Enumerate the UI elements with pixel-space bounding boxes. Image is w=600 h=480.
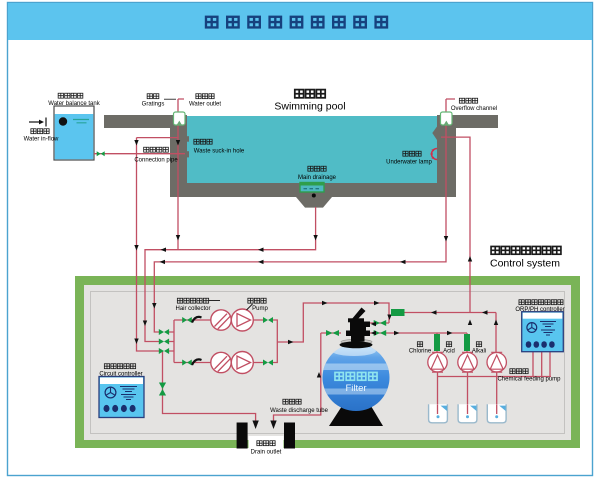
svg-text:Pump: Pump xyxy=(252,306,268,312)
svg-text:Water in-flow: Water in-flow xyxy=(24,137,59,143)
svg-text:Drain outlet: Drain outlet xyxy=(251,450,282,456)
svg-text:Waste discharge tube: Waste discharge tube xyxy=(270,408,328,414)
svg-text:ORP/PH controller: ORP/PH controller xyxy=(515,307,564,313)
svg-text:Water outlet: Water outlet xyxy=(189,102,221,108)
svg-text:Chlorine: Chlorine xyxy=(409,349,432,355)
svg-text:Swimming pool: Swimming pool xyxy=(274,101,345,113)
svg-text:Water balance tank: Water balance tank xyxy=(48,101,100,107)
svg-text:Chemical feeding pump: Chemical feeding pump xyxy=(497,377,561,383)
svg-text:Main drainage: Main drainage xyxy=(298,175,337,181)
svg-text:Alkali: Alkali xyxy=(472,349,486,355)
svg-text:Hair collector: Hair collector xyxy=(175,306,210,312)
svg-text:Filter: Filter xyxy=(345,383,366,394)
svg-text:Circuit controller: Circuit controller xyxy=(99,372,142,378)
svg-text:Acid: Acid xyxy=(443,349,455,355)
svg-text:Waste suck-in hole: Waste suck-in hole xyxy=(194,149,245,155)
svg-text:Connection pipe: Connection pipe xyxy=(134,158,178,164)
svg-text:Control system: Control system xyxy=(490,258,560,270)
svg-text:Underwater lamp: Underwater lamp xyxy=(386,160,432,166)
svg-text:Gratings: Gratings xyxy=(142,102,165,108)
svg-text:Overflow channel: Overflow channel xyxy=(451,106,497,112)
